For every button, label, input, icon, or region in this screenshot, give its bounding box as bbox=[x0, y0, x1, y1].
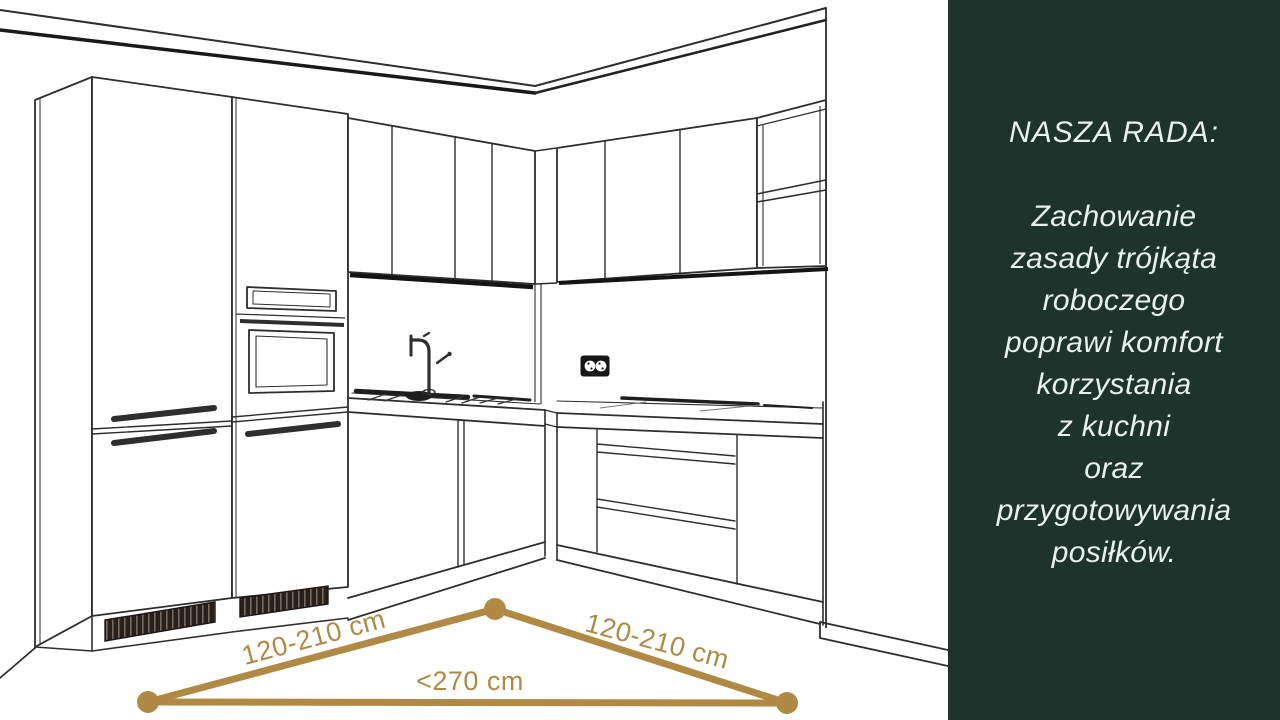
advice-panel: NASZA RADA: Zachowanie zasady trójkąta r… bbox=[948, 0, 1280, 720]
advice-line: przygotowywania bbox=[948, 490, 1280, 532]
ceiling-lines bbox=[0, 8, 826, 93]
advice-line: poprawi komfort bbox=[948, 322, 1280, 364]
drawer-gap-bottom bbox=[597, 499, 735, 529]
triangle-apex-dot bbox=[484, 598, 506, 620]
built-in-oven bbox=[236, 287, 345, 393]
advice-line: korzystania bbox=[948, 364, 1280, 406]
triangle-base bbox=[148, 702, 787, 703]
advice-line: posiłków. bbox=[948, 532, 1280, 574]
fridge-column bbox=[92, 77, 232, 616]
triangle-left-dot bbox=[137, 691, 159, 713]
advice-line: oraz bbox=[948, 448, 1280, 490]
faucet-lever bbox=[437, 355, 448, 363]
faucet-icon bbox=[409, 333, 451, 394]
kitchen-line-drawing: 120-210 cm 120-210 cm <270 cm bbox=[0, 0, 948, 720]
advice-line: roboczego bbox=[948, 280, 1280, 322]
triangle-right-dot bbox=[776, 692, 798, 714]
drawer-gap-top bbox=[597, 444, 735, 464]
advice-line: Zachowanie bbox=[948, 196, 1280, 238]
open-shelf-unit bbox=[757, 100, 826, 268]
wall-cabinets-left bbox=[348, 118, 535, 287]
tall-cabinet-side-panel bbox=[35, 77, 92, 647]
work-triangle-labels: 120-210 cm 120-210 cm <270 cm bbox=[239, 604, 733, 696]
base-cabinets-left bbox=[348, 410, 557, 620]
advice-panel-title: NASZA RADA: bbox=[948, 112, 1280, 154]
kitchen-drawing-area: 120-210 cm 120-210 cm <270 cm bbox=[0, 0, 948, 720]
kitchen-work-triangle-infographic: 120-210 cm 120-210 cm <270 cm NASZA RADA… bbox=[0, 0, 1280, 720]
counter-left-run bbox=[348, 391, 545, 426]
advice-line: z kuchni bbox=[948, 406, 1280, 448]
base-measurement-label: <270 cm bbox=[416, 666, 524, 696]
advice-line: zasady trójkąta bbox=[948, 238, 1280, 280]
corner-filler bbox=[535, 148, 557, 404]
power-outlet-icon bbox=[581, 356, 609, 376]
baseboard-right bbox=[820, 622, 948, 666]
